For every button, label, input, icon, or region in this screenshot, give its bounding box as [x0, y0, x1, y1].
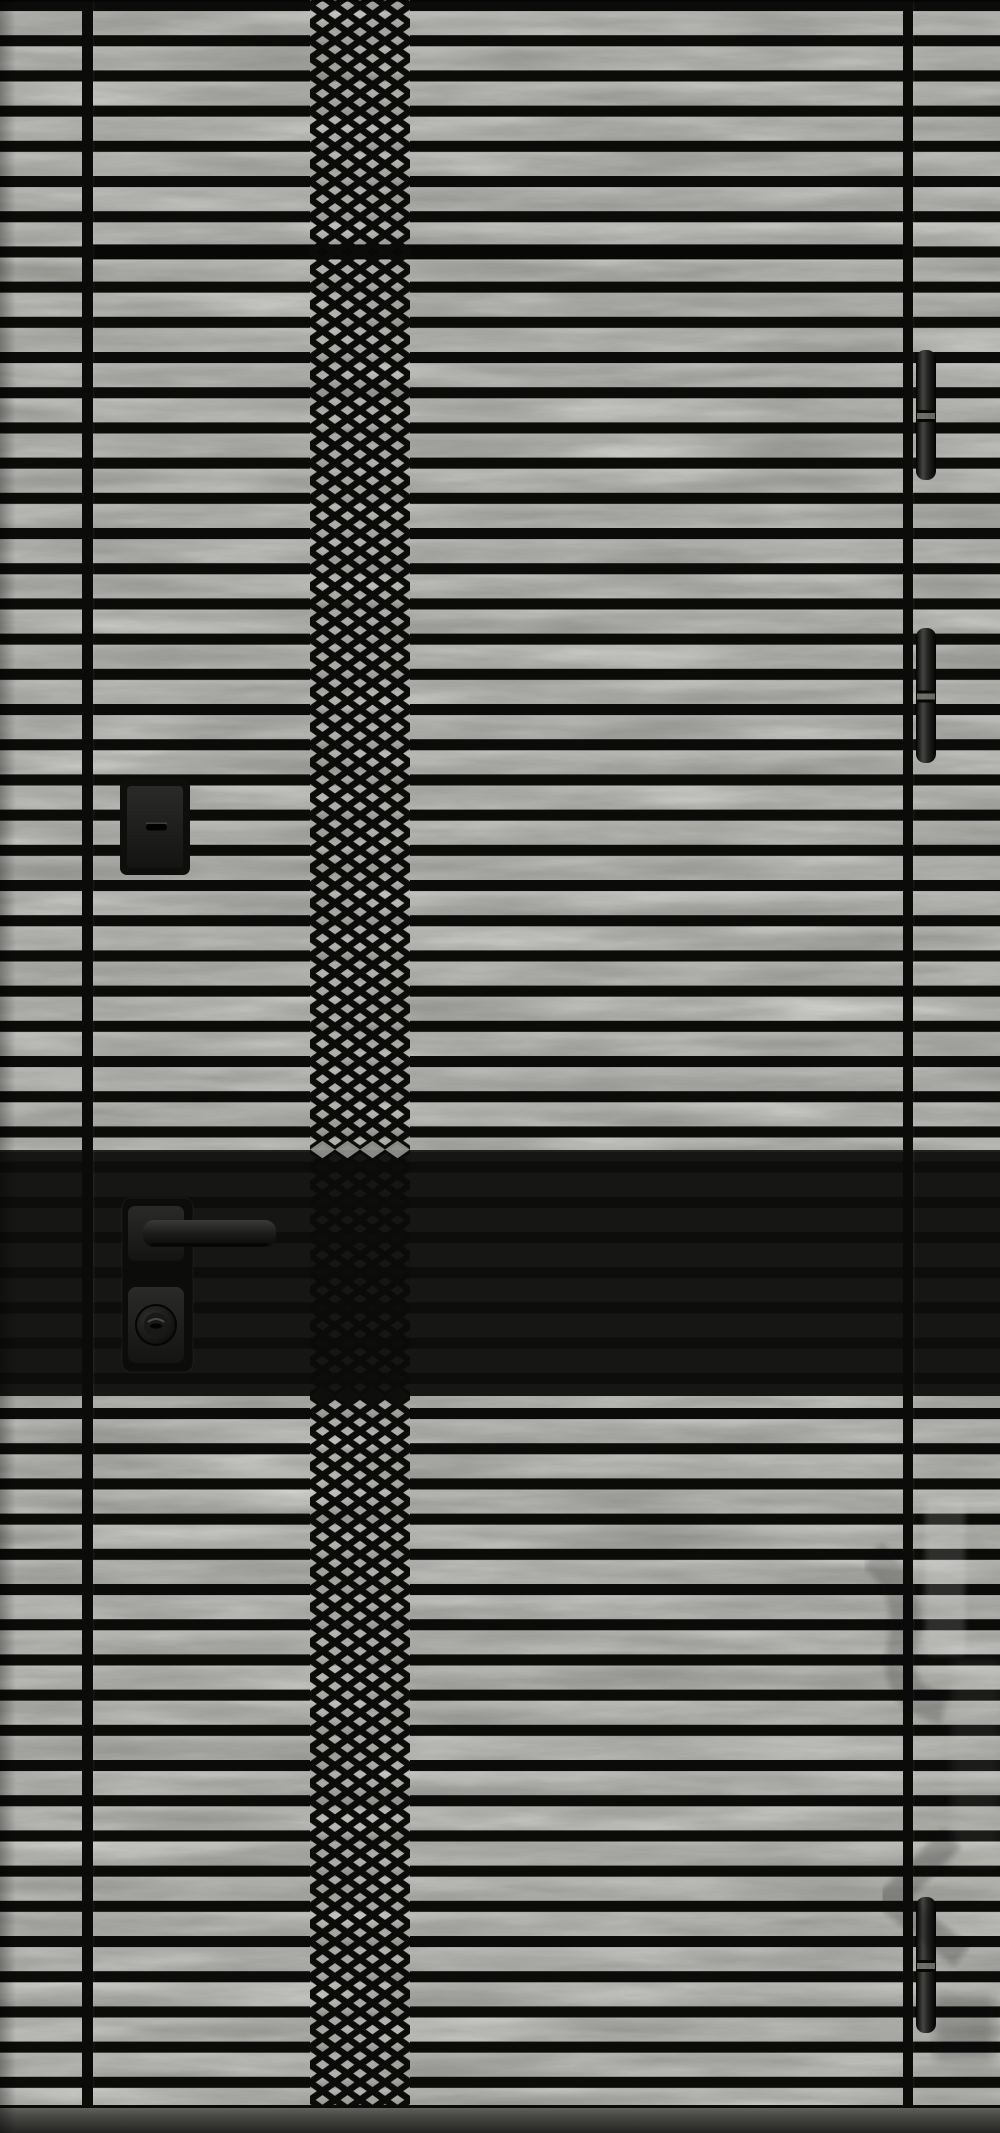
groove-line	[0, 1443, 310, 1454]
groove-line	[0, 1056, 310, 1067]
groove-line	[0, 915, 310, 926]
groove-line	[0, 317, 310, 328]
hinge-knuckle	[917, 413, 935, 419]
groove-line	[0, 493, 310, 504]
groove-line	[0, 422, 310, 433]
door-threshold	[0, 2105, 1000, 2133]
groove-line	[0, 1971, 310, 1982]
groove-line	[0, 1901, 310, 1912]
groove-line	[0, 2042, 310, 2053]
groove-line	[0, 458, 310, 469]
groove-line	[0, 35, 310, 46]
groove-line	[0, 1830, 310, 1841]
groove-line	[0, 1795, 310, 1806]
lever-handle	[143, 1220, 276, 1247]
groove-line	[0, 1654, 310, 1665]
panel-seam	[93, 244, 903, 259]
groove-line	[0, 950, 310, 961]
groove-line	[0, 669, 310, 680]
groove-line	[0, 704, 310, 715]
groove-line	[0, 176, 310, 187]
door-render	[0, 0, 1000, 2133]
groove-line	[0, 1514, 310, 1525]
band-groove	[0, 1373, 1000, 1384]
groove-line	[0, 1091, 310, 1102]
right-leaf-edge	[903, 0, 913, 2125]
groove-line	[0, 352, 310, 363]
groove-line	[0, 1690, 310, 1701]
hinge-knuckle	[917, 1963, 935, 1969]
groove-line	[0, 880, 310, 891]
keyhole-slot	[146, 824, 167, 831]
groove-line	[0, 70, 310, 81]
groove-line	[0, 986, 310, 997]
groove-line	[0, 282, 310, 293]
diamond-lattice-column	[310, 0, 410, 2133]
groove-line	[0, 1936, 310, 1947]
groove-line	[0, 211, 310, 222]
threshold-strip	[0, 2108, 1000, 2133]
groove-line	[0, 1760, 310, 1771]
groove-line	[0, 739, 310, 750]
groove-line	[0, 1478, 310, 1489]
door-photo	[0, 0, 1000, 2133]
groove-line	[0, 1584, 310, 1595]
groove-line	[0, 598, 310, 609]
groove-line	[0, 634, 310, 645]
hinge-knuckle	[917, 694, 935, 700]
groove-line	[0, 141, 310, 152]
groove-line	[0, 563, 310, 574]
groove-line	[0, 1021, 310, 1032]
upper-lock-escutcheon	[120, 779, 190, 875]
groove-line	[0, 1549, 310, 1560]
groove-line	[0, 387, 310, 398]
groove-line	[0, 1126, 310, 1137]
hinge	[916, 350, 936, 480]
lattice-mesh	[310, 0, 410, 2133]
groove-line	[0, 1619, 310, 1630]
groove-line	[0, 1725, 310, 1736]
groove-line	[0, 106, 310, 117]
groove-line	[0, 2006, 310, 2017]
knob-keyslot	[150, 1323, 162, 1328]
band-groove	[0, 1162, 1000, 1173]
groove-line	[0, 2077, 310, 2088]
groove-line	[0, 1866, 310, 1877]
groove-line	[0, 1408, 310, 1419]
groove-line	[0, 528, 310, 539]
hinge	[916, 628, 936, 763]
left-frame-groove	[82, 0, 93, 2125]
